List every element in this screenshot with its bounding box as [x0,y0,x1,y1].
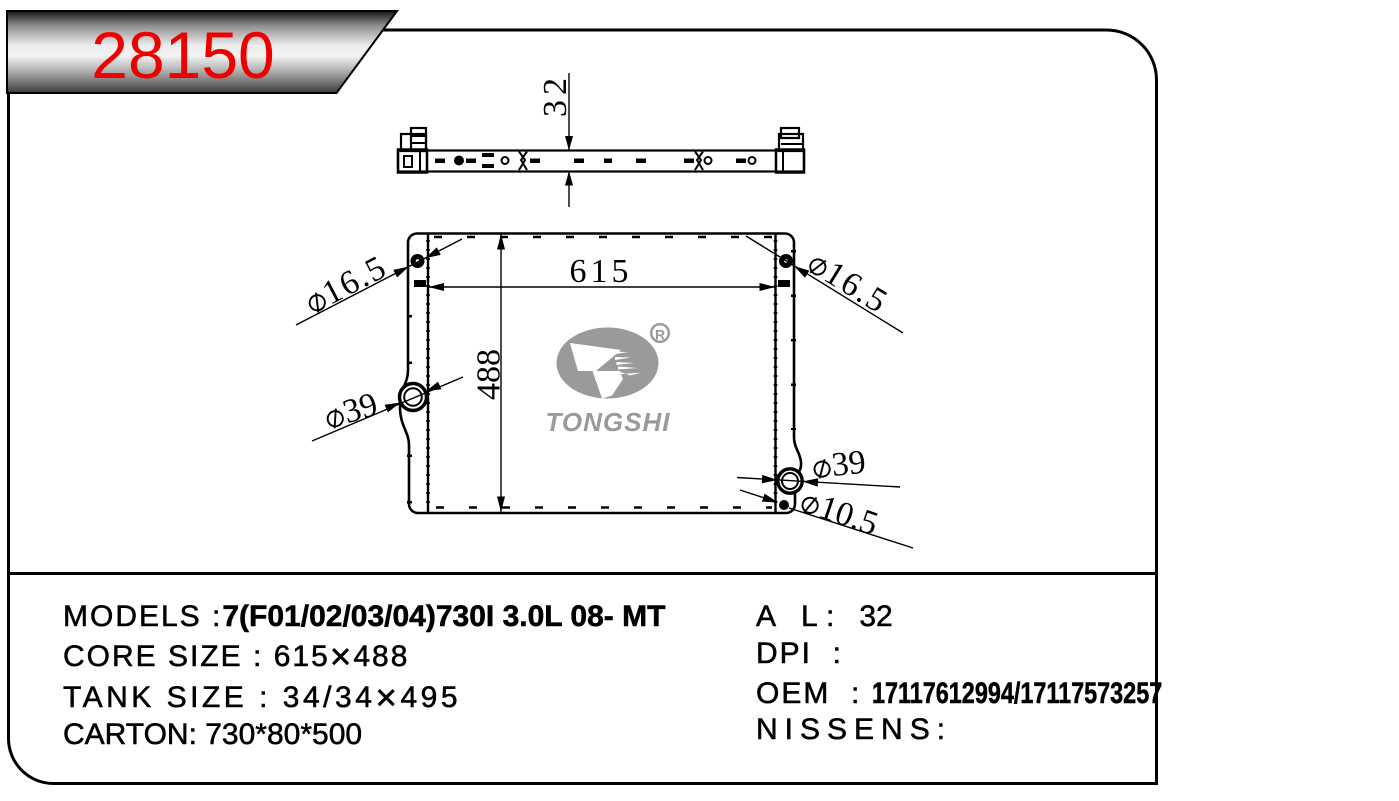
svg-text:10.5: 10.5 [814,489,882,543]
svg-text:TONGSHI: TONGSHI [546,407,671,437]
svg-text:16.5: 16.5 [316,248,393,312]
svg-text:16.5: 16.5 [818,254,895,321]
svg-text:39: 39 [339,386,382,431]
svg-text:28150: 28150 [91,18,275,92]
svg-text:32: 32 [537,73,574,117]
svg-text:488: 488 [471,349,508,400]
svg-text:R: R [655,327,665,343]
svg-text:39: 39 [830,444,868,484]
svg-text:615: 615 [570,253,633,290]
